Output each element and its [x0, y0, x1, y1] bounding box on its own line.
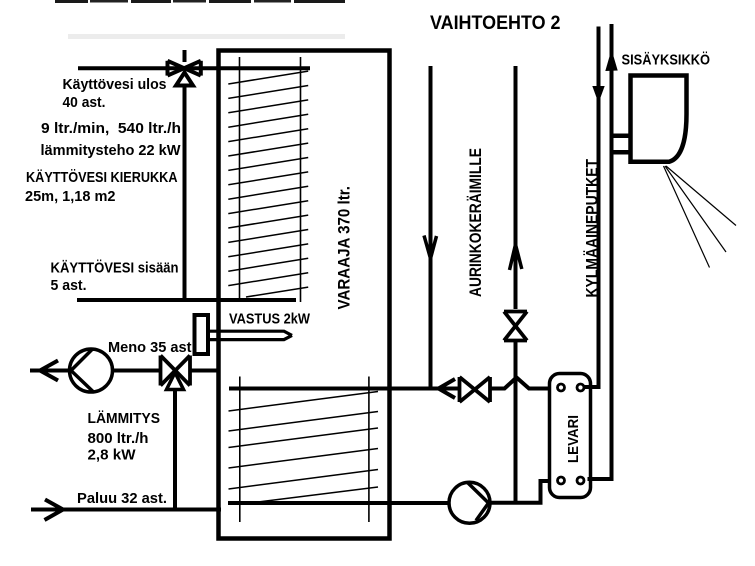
svg-text:SISÄYKSIKKÖ: SISÄYKSIKKÖ — [622, 52, 711, 69]
svg-text:Meno 35 ast.: Meno 35 ast. — [108, 339, 196, 356]
svg-text:25m, 1,18 m2: 25m, 1,18 m2 — [25, 188, 116, 205]
svg-text:KYLMÄAINEPUTKET: KYLMÄAINEPUTKET — [584, 159, 602, 298]
svg-text:40 ast.: 40 ast. — [63, 94, 106, 111]
svg-text:800 ltr./h: 800 ltr./h — [88, 430, 149, 447]
svg-text:KÄYTTÖVESI sisään: KÄYTTÖVESI sisään — [51, 260, 179, 277]
svg-text:5 ast.: 5 ast. — [51, 277, 87, 294]
svg-text:9 ltr./min, 540 ltr./h: 9 ltr./min, 540 ltr./h — [41, 120, 181, 137]
svg-text:lämmitysteho 22 kW: lämmitysteho 22 kW — [41, 142, 182, 159]
svg-text:2,8 kW: 2,8 kW — [88, 447, 137, 464]
svg-text:VAIHTOEHTO 2: VAIHTOEHTO 2 — [430, 13, 561, 34]
svg-text:AURINKOKERÄIMILLE: AURINKOKERÄIMILLE — [467, 148, 485, 297]
svg-text:KÄYTTÖVESI KIERUKKA: KÄYTTÖVESI KIERUKKA — [26, 169, 178, 186]
svg-text:VASTUS 2kW: VASTUS 2kW — [229, 311, 311, 328]
svg-text:LÄMMITYS: LÄMMITYS — [88, 410, 161, 427]
svg-text:LEVARI: LEVARI — [565, 415, 582, 463]
svg-text:Käyttövesi ulos: Käyttövesi ulos — [63, 76, 167, 93]
svg-text:VARAAJA 370 ltr.: VARAAJA 370 ltr. — [335, 186, 354, 310]
svg-text:Paluu 32 ast.: Paluu 32 ast. — [77, 490, 167, 507]
